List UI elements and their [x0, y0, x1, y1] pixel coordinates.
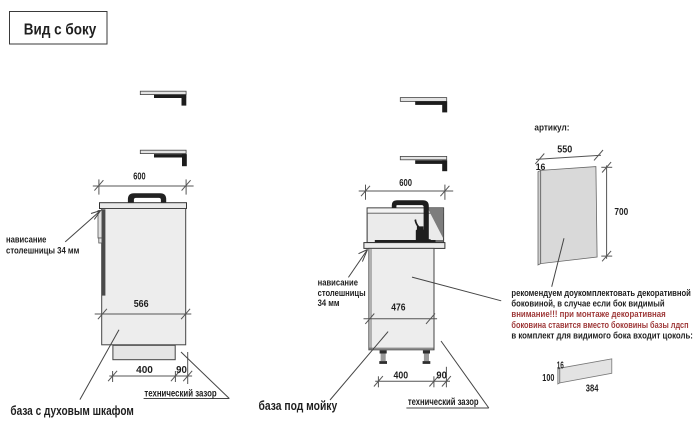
- svg-text:34 мм: 34 мм: [318, 298, 340, 309]
- svg-text:400: 400: [136, 365, 153, 376]
- svg-text:рекомендуем доукомплектовать д: рекомендуем доукомплектовать декоративно…: [511, 288, 691, 299]
- svg-text:боковиной, в случае если бок в: боковиной, в случае если бок видимый: [511, 299, 664, 310]
- svg-text:артикул:: артикул:: [534, 123, 569, 134]
- svg-text:в комплект для видимого бока в: в комплект для видимого бока входит цоко…: [511, 331, 693, 342]
- svg-text:16: 16: [557, 361, 564, 372]
- svg-text:база под мойку: база под мойку: [259, 399, 338, 413]
- svg-text:база с духовым шкафом: база с духовым шкафом: [10, 404, 133, 418]
- svg-text:600: 600: [399, 178, 412, 189]
- svg-text:90: 90: [176, 365, 187, 376]
- svg-text:384: 384: [586, 384, 599, 395]
- svg-text:внимание!!! при монтаже декора: внимание!!! при монтаже декоративная: [511, 309, 665, 320]
- svg-text:100: 100: [542, 373, 554, 384]
- svg-text:90: 90: [436, 371, 447, 382]
- svg-text:нависание: нависание: [6, 235, 46, 246]
- svg-text:Вид с боку: Вид с боку: [24, 21, 97, 38]
- svg-text:технический зазор: технический зазор: [144, 388, 216, 400]
- svg-text:600: 600: [133, 172, 146, 183]
- svg-text:400: 400: [394, 371, 409, 382]
- svg-text:476: 476: [391, 303, 406, 314]
- svg-text:566: 566: [134, 299, 149, 310]
- svg-text:боковина ставится вместо боков: боковина ставится вместо боковины базы л…: [511, 320, 688, 331]
- svg-text:550: 550: [557, 144, 572, 155]
- svg-text:столешницы 34 мм: столешницы 34 мм: [6, 246, 79, 257]
- svg-text:технический зазор: технический зазор: [408, 396, 479, 408]
- svg-text:700: 700: [614, 207, 628, 218]
